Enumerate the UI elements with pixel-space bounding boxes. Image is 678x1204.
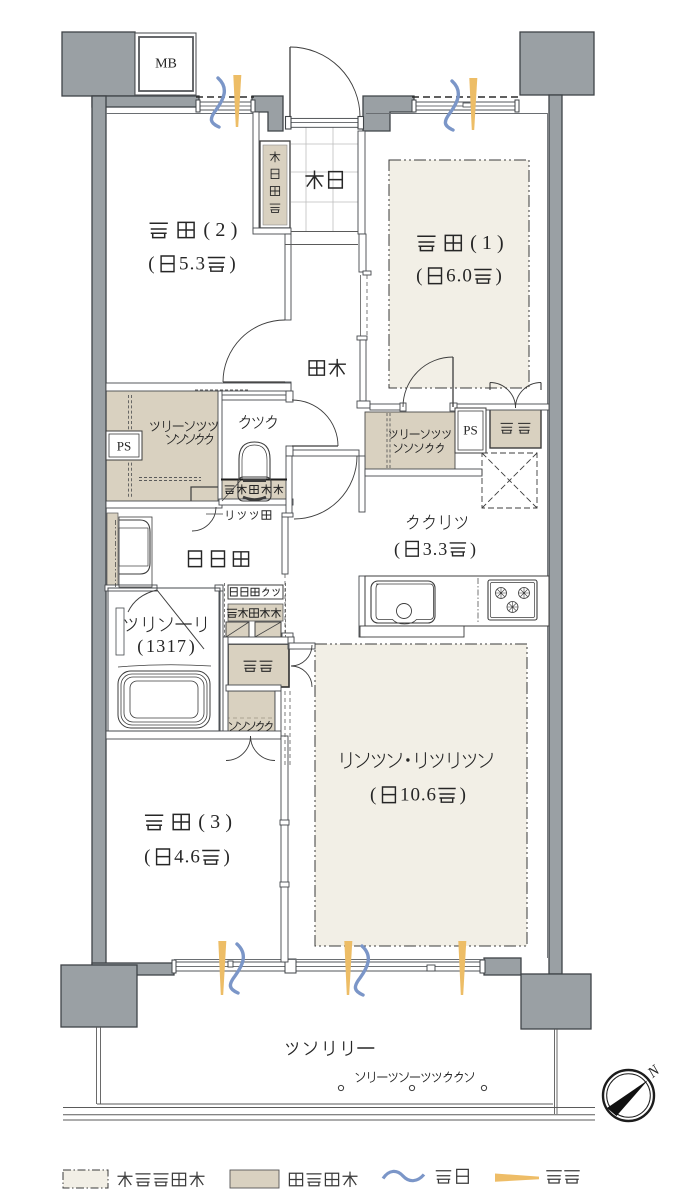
svg-text:(: ( (416, 266, 422, 287)
svg-text:): ) (460, 785, 466, 806)
svg-text:.: . (433, 539, 438, 559)
svg-text:.: . (185, 847, 190, 868)
svg-text:0: 0 (462, 266, 472, 287)
svg-text:.: . (190, 254, 195, 275)
svg-text:4: 4 (174, 847, 184, 868)
svg-text:(: ( (370, 785, 376, 806)
svg-text:): ) (229, 254, 235, 275)
svg-text:): ) (497, 232, 504, 254)
svg-text:(: ( (470, 232, 477, 254)
svg-text:(: ( (144, 847, 150, 868)
svg-text:.: . (457, 266, 462, 287)
svg-text:2: 2 (215, 219, 225, 241)
svg-text:(: ( (198, 811, 205, 833)
svg-text:3: 3 (438, 539, 447, 559)
svg-text:3: 3 (423, 539, 432, 559)
svg-text:6: 6 (446, 266, 456, 287)
svg-text:3: 3 (156, 636, 165, 656)
svg-text:MB: MB (155, 57, 177, 72)
svg-text:3: 3 (210, 811, 220, 833)
svg-text:): ) (470, 539, 476, 560)
svg-text:3: 3 (196, 254, 206, 275)
svg-text:): ) (224, 847, 230, 868)
svg-text:PS: PS (463, 423, 477, 438)
svg-text:(: ( (394, 539, 400, 560)
svg-text:0: 0 (410, 785, 420, 806)
svg-text:.: . (421, 785, 426, 806)
svg-text:(: ( (137, 636, 143, 657)
svg-text:5: 5 (179, 254, 189, 275)
svg-text:): ) (231, 219, 238, 241)
svg-text:): ) (496, 266, 502, 287)
svg-text:6: 6 (427, 785, 437, 806)
svg-text:PS: PS (117, 439, 131, 454)
svg-text:(: ( (203, 219, 210, 241)
svg-text:7: 7 (177, 636, 186, 656)
svg-text:): ) (189, 636, 195, 657)
svg-text:): ) (225, 811, 232, 833)
svg-text:1: 1 (146, 636, 155, 656)
svg-text:1: 1 (400, 785, 410, 806)
svg-text:6: 6 (190, 847, 200, 868)
svg-text:(: ( (148, 254, 154, 275)
svg-text:1: 1 (482, 232, 492, 254)
svg-text:1: 1 (167, 636, 176, 656)
